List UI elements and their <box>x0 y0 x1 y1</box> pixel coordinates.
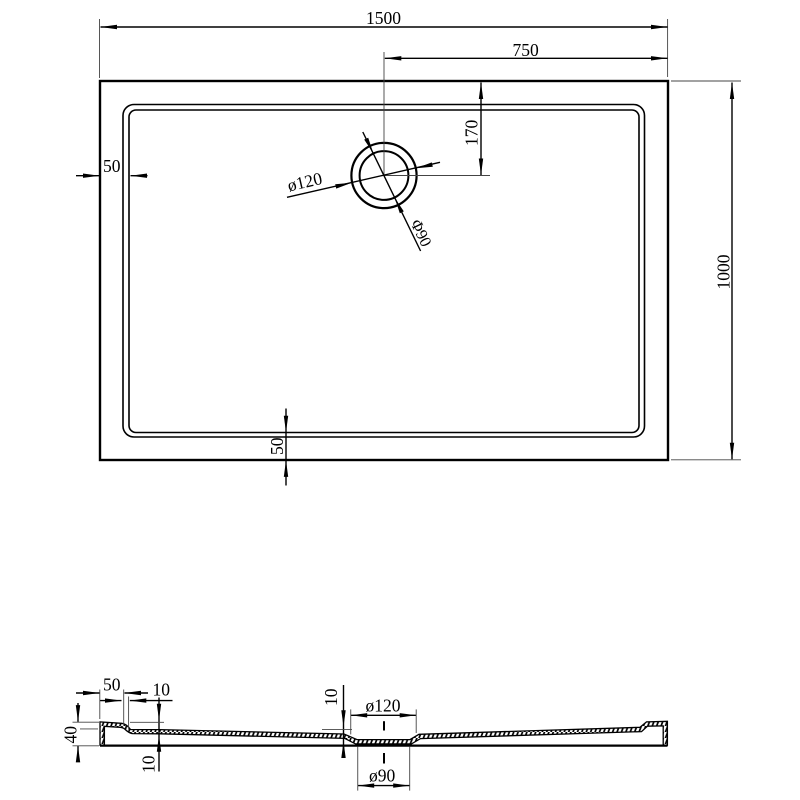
svg-text:ø120: ø120 <box>366 696 401 716</box>
svg-text:40: 40 <box>61 726 81 744</box>
svg-text:50: 50 <box>267 437 287 455</box>
svg-text:1000: 1000 <box>714 254 734 289</box>
svg-text:10: 10 <box>321 688 341 706</box>
svg-text:ø90: ø90 <box>369 766 396 786</box>
svg-text:10: 10 <box>139 755 159 773</box>
svg-text:10: 10 <box>153 680 171 700</box>
svg-text:50: 50 <box>103 675 121 695</box>
svg-text:750: 750 <box>513 40 540 60</box>
svg-text:1500: 1500 <box>366 8 401 28</box>
svg-text:170: 170 <box>462 120 482 147</box>
svg-text:50: 50 <box>103 156 121 176</box>
